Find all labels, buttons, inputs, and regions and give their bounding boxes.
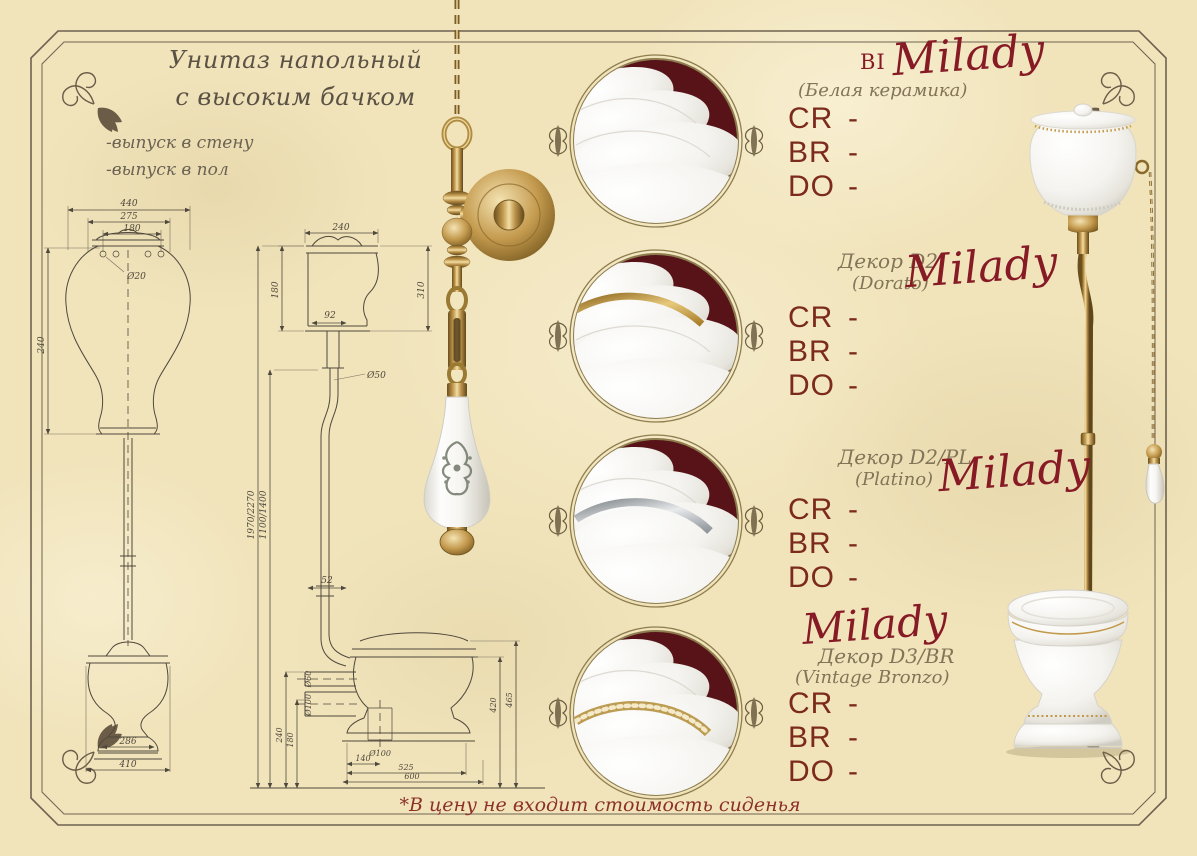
price-value: - — [848, 757, 858, 787]
dim-label: 180 — [271, 281, 281, 298]
variant-decor-label: Декор D3/BR — [818, 644, 955, 668]
price-row: BR- — [788, 337, 858, 367]
price-code: CR — [788, 104, 840, 134]
dim-label: 52 — [321, 576, 333, 586]
price-row: BR- — [788, 138, 858, 168]
outlet-option-wall: -выпуск в стену — [106, 130, 253, 157]
outlet-options: -выпуск в стену -выпуск в пол — [106, 130, 253, 184]
price-code: DO — [788, 563, 840, 593]
price-value: - — [848, 371, 858, 401]
dim-label: Ø100 — [304, 694, 313, 717]
dim-label: 1100/1400 — [259, 490, 269, 539]
price-row: DO- — [788, 563, 858, 593]
dim-label: 275 — [119, 212, 137, 222]
price-code: DO — [788, 371, 840, 401]
technical-drawing-side-view: 240 180 310 92 Ø50 52 1970/2270 1100/140… — [247, 223, 545, 788]
price-value: - — [848, 172, 858, 202]
price-value: - — [848, 689, 858, 719]
dim-label: 465 — [505, 692, 514, 708]
dim-label: 440 — [119, 199, 137, 209]
technical-drawing-front-view: 440 275 180 240 Ø20 286 410 — [37, 199, 190, 772]
footnote: *В цену не входит стоимость сиденья — [380, 794, 820, 816]
dim-label: 410 — [118, 760, 136, 770]
price-code: BR — [788, 723, 840, 753]
variant-finish-label: (Platino) — [855, 469, 933, 490]
price-row: CR- — [788, 104, 858, 134]
dim-label: 92 — [324, 311, 336, 321]
dim-label: Ø100 — [368, 749, 391, 758]
flourish-icon — [746, 505, 763, 537]
dim-label: 240 — [331, 223, 349, 233]
price-code: CR — [788, 495, 840, 525]
outlet-option-floor: -выпуск в пол — [106, 157, 253, 184]
price-list: CR- BR- DO- — [788, 689, 858, 791]
dim-label: Ø60 — [304, 671, 313, 689]
dim-label: 240 — [275, 727, 284, 743]
detail-medallion-platinum — [551, 435, 761, 639]
flourish-icon — [550, 697, 567, 729]
price-code: BR — [788, 337, 840, 367]
price-value: - — [848, 104, 858, 134]
detail-medallion-gold — [551, 250, 761, 454]
price-row: BR- — [788, 723, 858, 753]
brand-script: Milady — [937, 445, 1092, 500]
price-row: CR- — [788, 303, 858, 333]
page-title-line2: с высоким бачком — [158, 79, 433, 116]
price-value: - — [848, 563, 858, 593]
variant-finish-label: (Белая керамика) — [798, 80, 967, 101]
variant-finish-label: (Vintage Bronzo) — [795, 667, 950, 688]
price-code: CR — [788, 303, 840, 333]
price-code: DO — [788, 757, 840, 787]
brand-script: Milady — [891, 29, 1046, 84]
dim-label: Ø20 — [126, 271, 146, 282]
page-artwork: 440 275 180 240 Ø20 286 410 — [0, 0, 1197, 856]
brand-script: Milady — [904, 241, 1059, 296]
page-title: Унитаз напольный с высоким бачком — [158, 42, 433, 116]
flourish-icon — [550, 320, 567, 352]
price-row: DO- — [788, 757, 858, 787]
pull-handle-photo — [424, 0, 555, 555]
price-row: DO- — [788, 371, 858, 401]
flourish-icon — [550, 125, 567, 157]
price-row: BR- — [788, 529, 858, 559]
catalog-page: 440 275 180 240 Ø20 286 410 — [0, 0, 1197, 856]
price-value: - — [848, 495, 858, 525]
detail-medallion-white — [551, 55, 761, 259]
page-title-line1: Унитаз напольный — [158, 42, 433, 79]
dim-label: Ø50 — [366, 370, 386, 381]
variant-code-prefix: BI — [860, 50, 886, 74]
dim-label: 286 — [118, 737, 136, 747]
price-value: - — [848, 138, 858, 168]
price-row: CR- — [788, 495, 858, 525]
toilet-with-high-cistern-photo — [1006, 104, 1164, 758]
price-row: CR- — [788, 689, 858, 719]
dim-label: 180 — [286, 732, 295, 747]
price-code: DO — [788, 172, 840, 202]
price-code: CR — [788, 689, 840, 719]
dim-label: 600 — [404, 772, 419, 781]
price-value: - — [848, 303, 858, 333]
price-list: CR- BR- DO- — [788, 495, 858, 597]
price-value: - — [848, 337, 858, 367]
dim-label: 420 — [489, 697, 498, 713]
dim-label: 525 — [398, 763, 413, 772]
dim-label: 1970/2270 — [247, 490, 257, 539]
flourish-icon — [746, 125, 763, 157]
flourish-icon — [746, 697, 763, 729]
flourish-icon — [746, 320, 763, 352]
corner-ornament — [63, 73, 122, 132]
price-value: - — [848, 723, 858, 753]
price-row: DO- — [788, 172, 858, 202]
dim-label: 240 — [37, 336, 47, 354]
dim-label: 310 — [417, 281, 427, 298]
price-list: CR- BR- DO- — [788, 104, 858, 206]
corner-ornament — [63, 724, 122, 783]
price-value: - — [848, 529, 858, 559]
price-code: BR — [788, 138, 840, 168]
flourish-icon — [550, 505, 567, 537]
price-code: BR — [788, 529, 840, 559]
dim-label: 140 — [355, 754, 370, 763]
price-list: CR- BR- DO- — [788, 303, 858, 405]
